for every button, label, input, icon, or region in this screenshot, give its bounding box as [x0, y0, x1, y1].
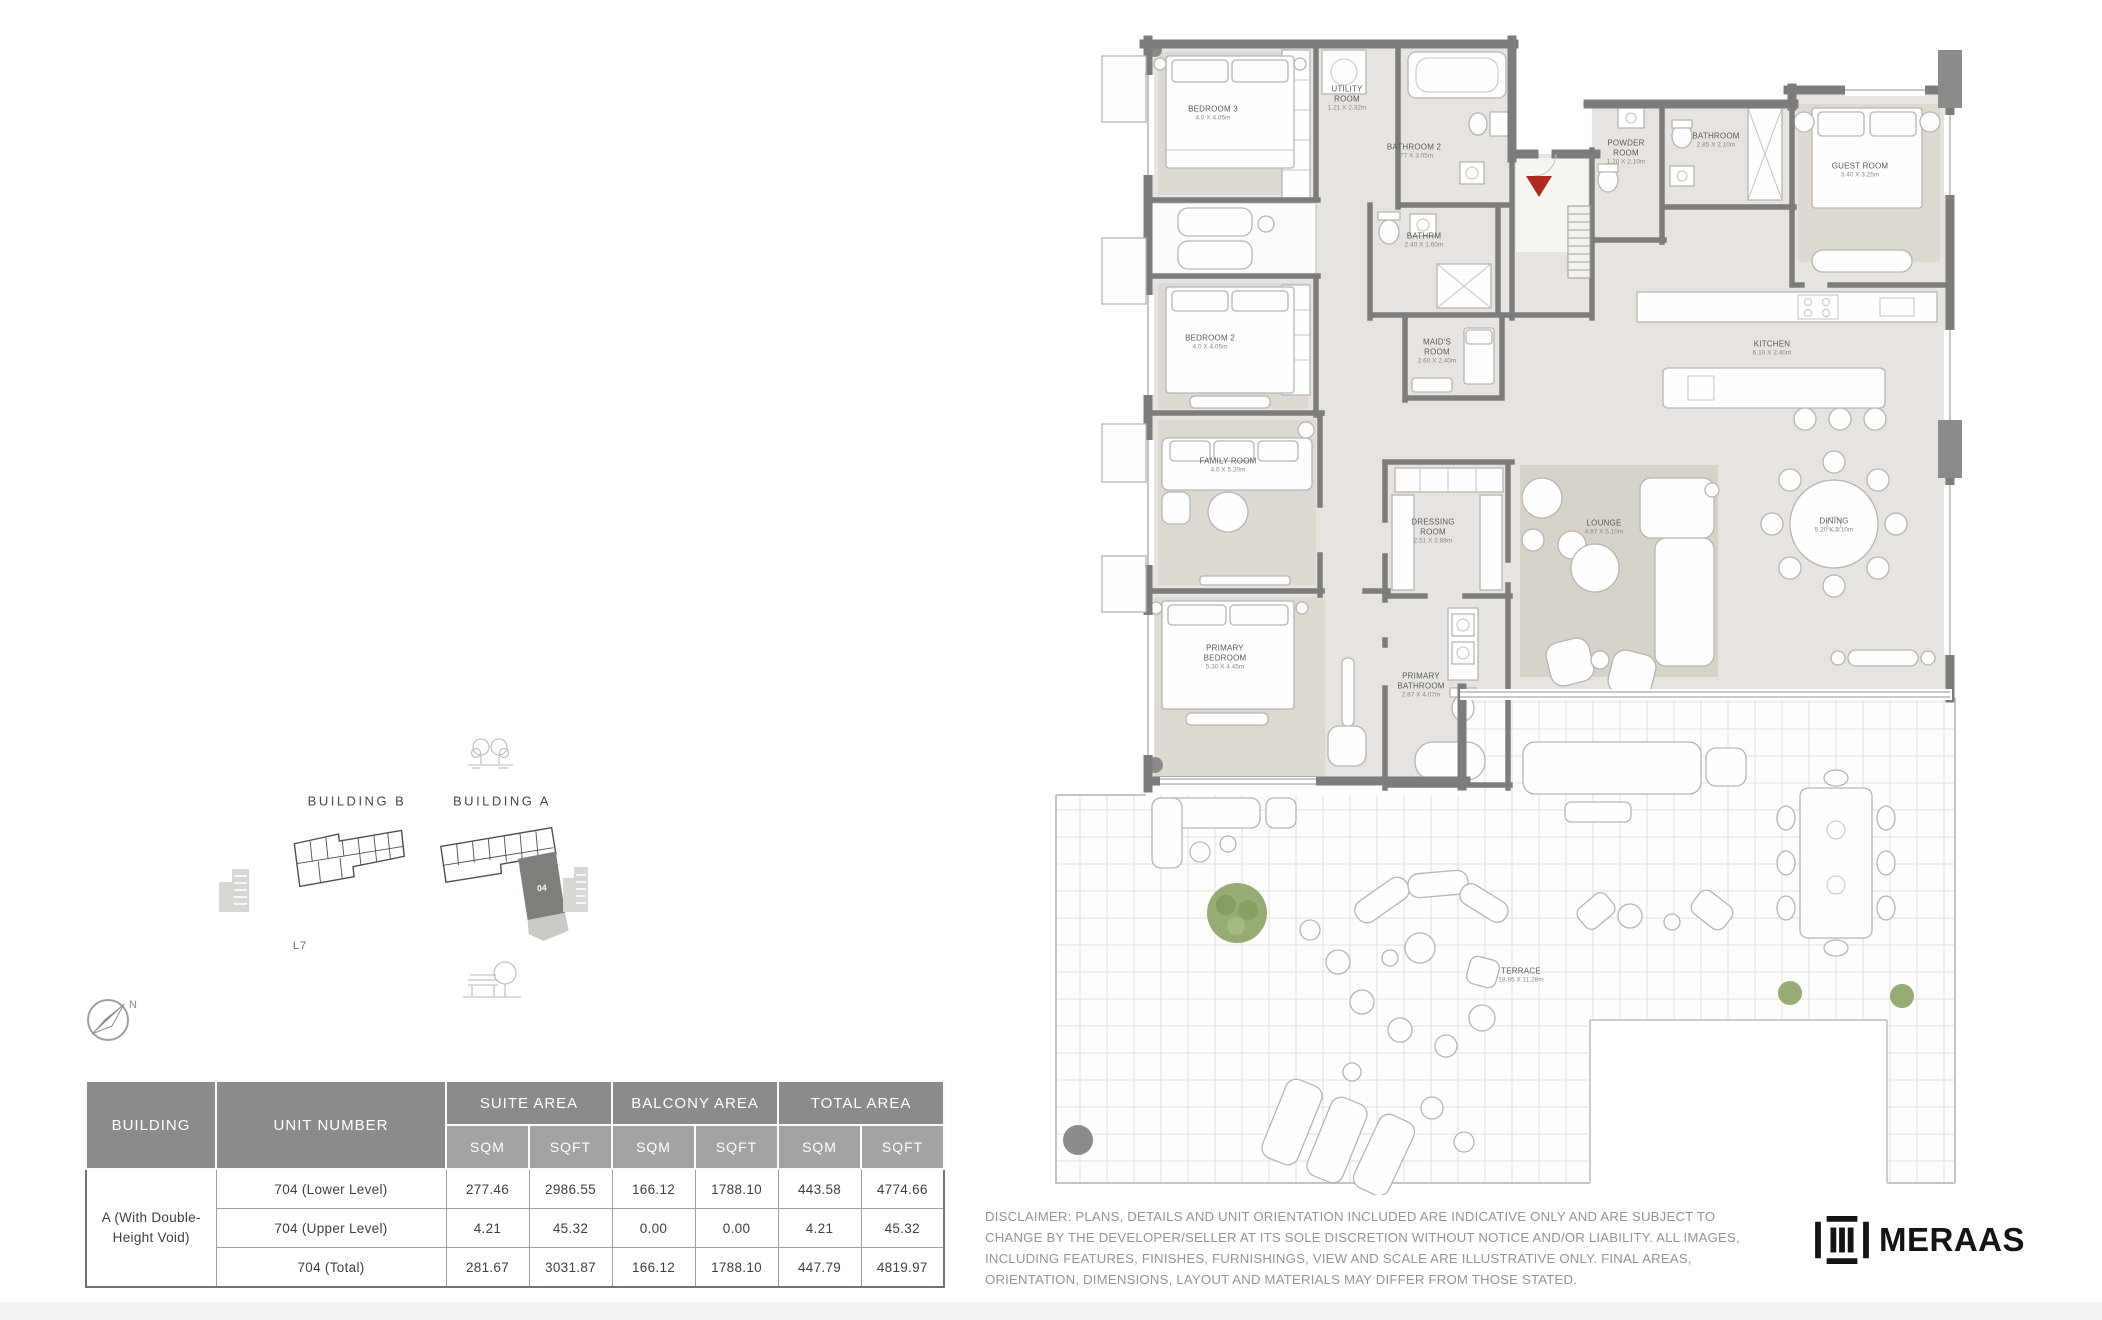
value-cell: 3031.87	[529, 1248, 612, 1288]
key-plan-graphic: 04 N	[60, 730, 640, 1060]
unit-cell: 704 (Total)	[216, 1248, 446, 1288]
value-cell: 277.46	[446, 1169, 529, 1209]
value-cell: 166.12	[612, 1169, 695, 1209]
building-b-outline	[294, 827, 406, 886]
value-cell: 4.21	[778, 1209, 861, 1248]
trees-icon	[468, 739, 513, 768]
value-cell: 447.79	[778, 1248, 861, 1288]
building-a-outline: 04	[440, 827, 569, 949]
value-cell: 1788.10	[695, 1248, 778, 1288]
col-building: BUILDING	[86, 1081, 216, 1169]
compass-icon: N	[88, 999, 137, 1040]
col-sub-sqft: SQFT	[695, 1125, 778, 1169]
bench-tree-icon	[463, 962, 521, 997]
meraas-logo-icon	[1815, 1216, 1869, 1264]
col-unit-number: UNIT NUMBER	[216, 1081, 446, 1169]
city-icon-left	[219, 869, 249, 912]
value-cell: 4819.97	[861, 1248, 944, 1288]
stairs	[1568, 206, 1590, 278]
col-total-area: TOTAL AREA	[778, 1081, 944, 1125]
value-cell: 1788.10	[695, 1169, 778, 1209]
disclaimer-text: DISCLAIMER: PLANS, DETAILS AND UNIT ORIE…	[985, 1206, 1775, 1291]
col-suite-area: SUITE AREA	[446, 1081, 612, 1125]
building-a-label: BUILDING A	[453, 794, 551, 809]
area-table: BUILDING UNIT NUMBER SUITE AREA BALCONY …	[85, 1080, 945, 1288]
value-cell: 281.67	[446, 1248, 529, 1288]
level-label: L7	[293, 940, 307, 952]
brand-logo-text: MERAAS	[1879, 1221, 2025, 1259]
building-cell: A (With Double-Height Void)	[86, 1169, 216, 1287]
unit-cell: 704 (Lower Level)	[216, 1169, 446, 1209]
table-row: A (With Double-Height Void) 704 (Lower L…	[86, 1169, 944, 1209]
col-sub-sqm: SQM	[778, 1125, 861, 1169]
value-cell: 45.32	[529, 1209, 612, 1248]
unit-cell: 704 (Upper Level)	[216, 1209, 446, 1248]
col-sub-sqm: SQM	[446, 1125, 529, 1169]
col-balcony-area: BALCONY AREA	[612, 1081, 778, 1125]
value-cell: 45.32	[861, 1209, 944, 1248]
compass-north-label: N	[129, 999, 137, 1011]
value-cell: 4.21	[446, 1209, 529, 1248]
page-bottom-strip	[0, 1302, 2102, 1320]
floor-plan-sheet: 04 N BUILDING B BUILDING A	[0, 0, 2102, 1320]
floor-plan: BEDROOM 34.0 X 4.05mUTILITY ROOM1.21 X 2…	[1040, 20, 1970, 1195]
col-sub-sqft: SQFT	[861, 1125, 944, 1169]
value-cell: 0.00	[695, 1209, 778, 1248]
value-cell: 2986.55	[529, 1169, 612, 1209]
value-cell: 443.58	[778, 1169, 861, 1209]
value-cell: 4774.66	[861, 1169, 944, 1209]
city-icon-right	[563, 867, 588, 912]
value-cell: 166.12	[612, 1248, 695, 1288]
col-sub-sqm: SQM	[612, 1125, 695, 1169]
col-sub-sqft: SQFT	[529, 1125, 612, 1169]
unit-04-badge: 04	[537, 882, 548, 893]
building-b-label: BUILDING B	[308, 794, 407, 809]
brand-logo: MERAAS	[1815, 1216, 2025, 1264]
value-cell: 0.00	[612, 1209, 695, 1248]
